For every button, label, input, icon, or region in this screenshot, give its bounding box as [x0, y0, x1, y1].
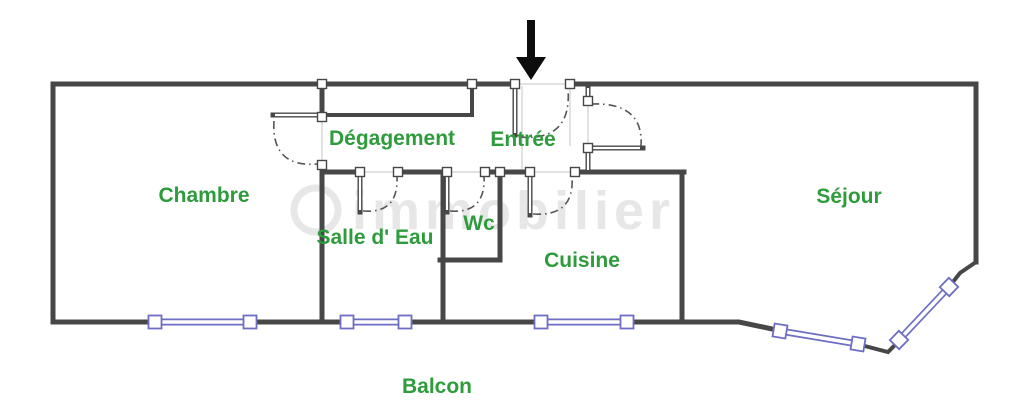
windows — [149, 278, 959, 352]
wall-node — [584, 97, 593, 106]
room-label-chambre: Chambre — [158, 184, 249, 208]
wall-node — [511, 80, 520, 89]
window-node — [773, 324, 788, 339]
window-node — [621, 316, 634, 329]
room-label-wc: Wc — [463, 212, 495, 236]
room-label-salle-d-eau: Salle d' Eau — [316, 226, 433, 250]
chambre-door-arc — [274, 121, 318, 164]
closet-walls — [322, 84, 472, 115]
wall-node — [526, 168, 535, 177]
window-node — [341, 316, 354, 329]
wall-node — [394, 168, 403, 177]
wall-node — [468, 80, 477, 89]
wall-node — [481, 168, 490, 177]
window-node — [399, 316, 412, 329]
room-label-balcon: Balcon — [402, 375, 472, 399]
room-label-cuisine: Cuisine — [544, 249, 620, 273]
window-node — [851, 337, 866, 352]
wall-node — [318, 161, 327, 170]
wall-node — [571, 168, 580, 177]
window-sejour-bay-1 — [780, 331, 858, 344]
wall-node — [443, 168, 452, 177]
room-label-entree: Entrée — [490, 128, 555, 152]
wall-node — [318, 113, 327, 122]
wall-node — [566, 80, 575, 89]
room-label-degagement: Dégagement — [329, 127, 455, 151]
wall-bottom-segment — [629, 322, 777, 330]
wall-node — [496, 168, 505, 177]
entrance-arrow — [516, 20, 546, 80]
wall-node — [584, 144, 593, 153]
room-label-sejour: Séjour — [816, 185, 881, 209]
window-node — [535, 316, 548, 329]
down-arrow-icon — [516, 20, 546, 80]
window-node — [244, 316, 257, 329]
floor-plan: immobilier — [0, 0, 1024, 415]
wall-node — [356, 168, 365, 177]
window-node — [149, 316, 162, 329]
window-sejour-bay-2 — [899, 287, 949, 340]
entree-sejour-door-arc — [591, 104, 641, 146]
wall-node — [318, 80, 327, 89]
